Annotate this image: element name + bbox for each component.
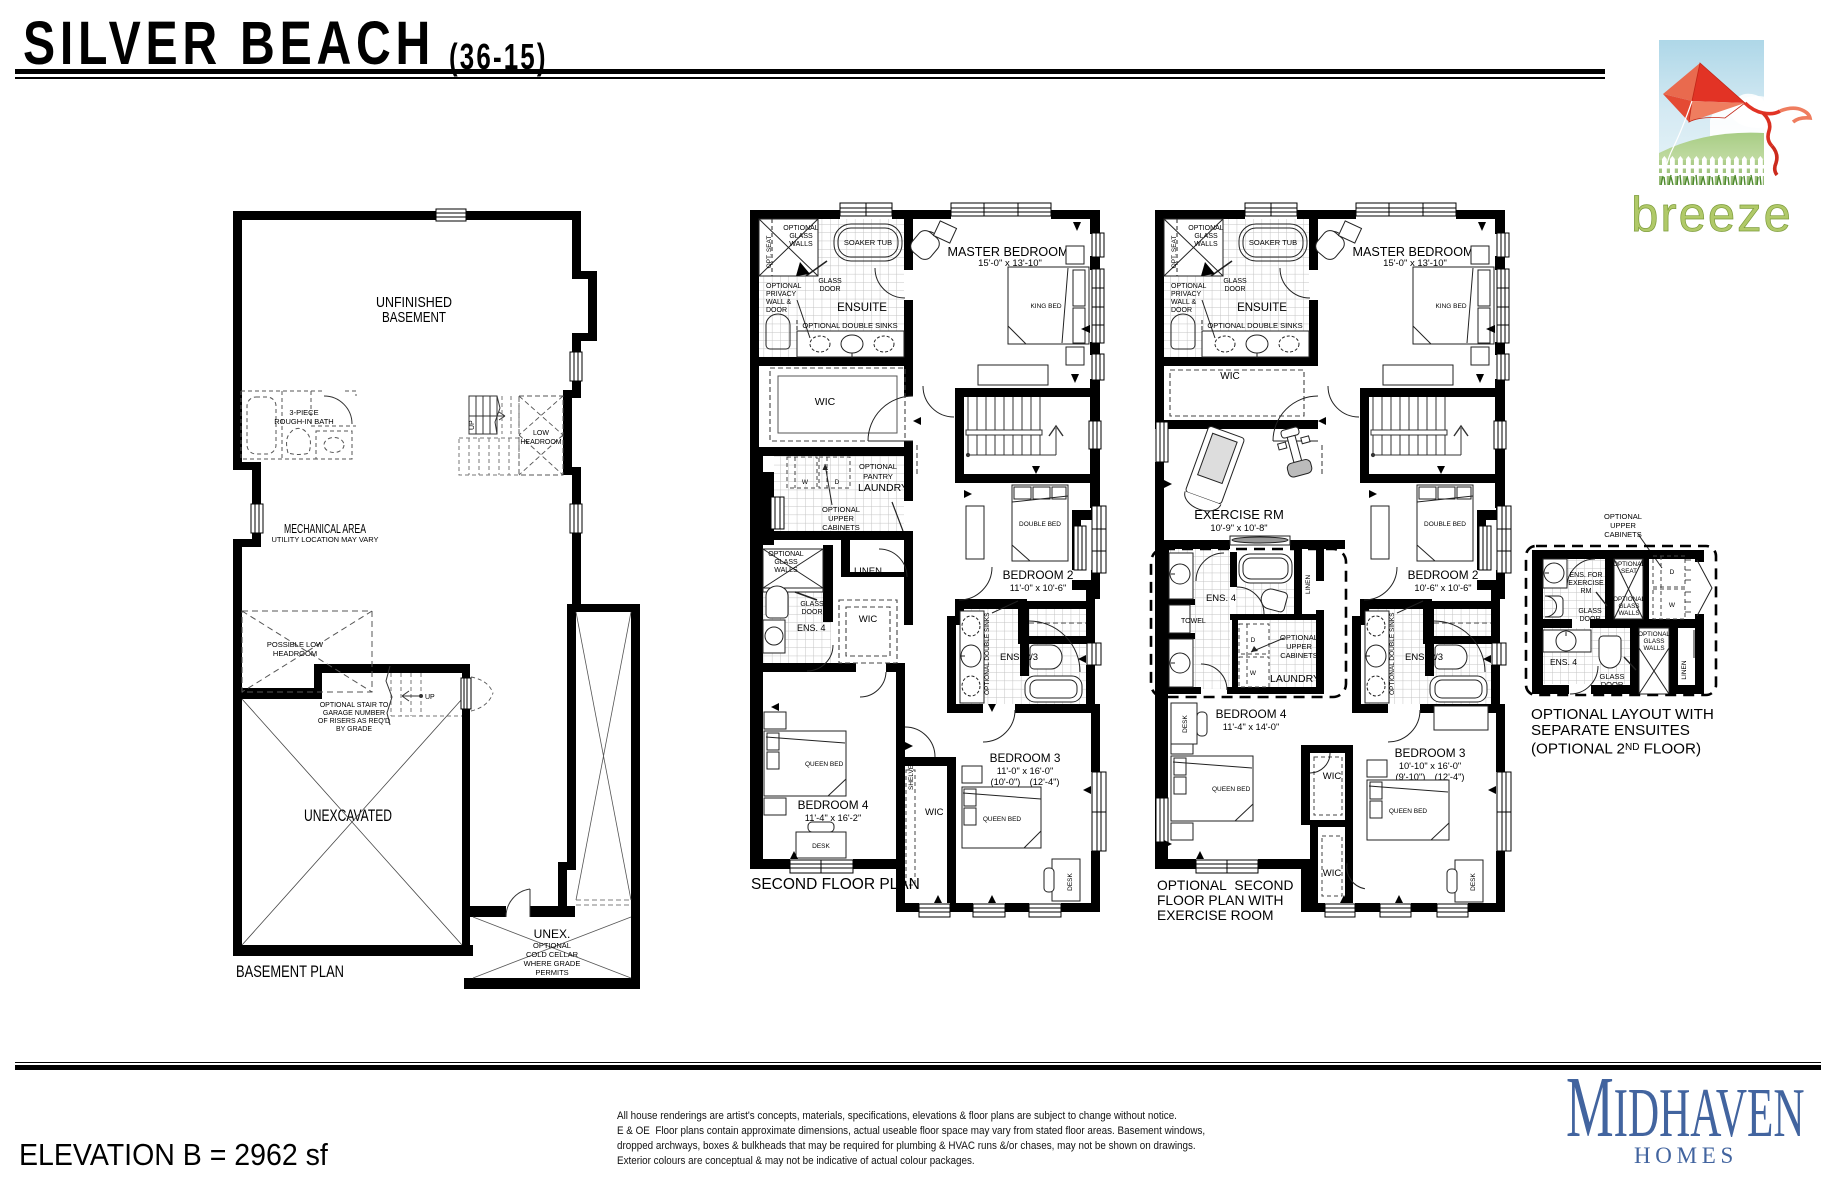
- svg-text:10'-6" x 10'-6": 10'-6" x 10'-6": [1414, 583, 1471, 593]
- svg-text:LOW: LOW: [533, 430, 549, 437]
- svg-text:WALL &: WALL &: [766, 299, 791, 306]
- svg-text:OPTIONAL: OPTIONAL: [783, 225, 819, 232]
- svg-text:CABINETS: CABINETS: [822, 523, 860, 532]
- svg-text:CABINETS: CABINETS: [1604, 530, 1642, 539]
- svg-text:ROUGH-IN BATH: ROUGH-IN BATH: [274, 417, 333, 426]
- svg-text:ENS. 2/3: ENS. 2/3: [1000, 652, 1038, 663]
- svg-text:WIC: WIC: [925, 807, 944, 818]
- svg-text:UNFINISHED: UNFINISHED: [376, 295, 452, 311]
- svg-text:D: D: [1670, 569, 1675, 576]
- svg-text:ENS. 4: ENS. 4: [1206, 593, 1236, 604]
- svg-text:OPT. SEAT: OPT. SEAT: [1171, 236, 1178, 269]
- svg-text:DOOR: DOOR: [766, 307, 787, 314]
- svg-text:WIC: WIC: [815, 396, 836, 408]
- svg-text:DOOR: DOOR: [802, 609, 823, 616]
- svg-text:GLASS: GLASS: [774, 559, 798, 566]
- svg-text:WIC: WIC: [1220, 371, 1239, 382]
- svg-text:GLASS: GLASS: [789, 233, 813, 240]
- svg-text:WALLS: WALLS: [1194, 241, 1218, 248]
- svg-text:LINEN: LINEN: [1305, 575, 1312, 594]
- svg-text:DESK: DESK: [1470, 872, 1477, 890]
- svg-text:CABINETS: CABINETS: [1280, 651, 1318, 660]
- svg-text:QUEEN BED: QUEEN BED: [1212, 786, 1251, 793]
- svg-text:BEDROOM 3: BEDROOM 3: [990, 751, 1061, 765]
- svg-text:LAUNDRY: LAUNDRY: [858, 482, 908, 494]
- svg-text:BASEMENT: BASEMENT: [382, 310, 446, 326]
- svg-text:MECHANICAL AREA: MECHANICAL AREA: [284, 522, 366, 536]
- svg-text:(10'-0") (12'-4"): (10'-0") (12'-4"): [990, 777, 1059, 787]
- svg-text:W: W: [802, 479, 809, 486]
- svg-text:UP: UP: [425, 694, 435, 701]
- svg-text:QUEEN BED: QUEEN BED: [805, 761, 844, 768]
- svg-text:GLASS: GLASS: [1644, 638, 1665, 645]
- svg-text:LINEN: LINEN: [854, 566, 882, 577]
- svg-text:OPTIONAL: OPTIONAL: [859, 462, 897, 471]
- svg-text:OPTIONAL: OPTIONAL: [1604, 512, 1642, 521]
- svg-text:LINEN: LINEN: [1681, 660, 1688, 679]
- svg-text:breeze: breeze: [1631, 188, 1793, 242]
- svg-text:OPTIONAL DOUBLE SINKS: OPTIONAL DOUBLE SINKS: [1389, 612, 1396, 695]
- svg-text:DN: DN: [1362, 460, 1369, 470]
- svg-text:RM: RM: [1581, 588, 1592, 595]
- svg-text:UPPER: UPPER: [1286, 642, 1312, 651]
- svg-text:POSSIBLE LOW: POSSIBLE LOW: [267, 640, 324, 649]
- svg-text:WALLS: WALLS: [1618, 610, 1639, 617]
- svg-text:GLASS: GLASS: [1578, 608, 1602, 615]
- svg-text:3-PIECE: 3-PIECE: [289, 408, 318, 417]
- svg-text:UPPER: UPPER: [1610, 521, 1636, 530]
- svg-text:DOOR: DOOR: [820, 286, 841, 293]
- svg-text:WIC: WIC: [1323, 771, 1342, 782]
- svg-text:GARAGE NUMBER: GARAGE NUMBER: [323, 710, 385, 717]
- svg-text:WALLS: WALLS: [789, 241, 813, 248]
- svg-text:DESK: DESK: [1067, 872, 1074, 890]
- svg-text:BY GRADE: BY GRADE: [336, 726, 372, 733]
- svg-text:BASEMENT PLAN: BASEMENT PLAN: [236, 963, 344, 981]
- svg-text:11'-0" x 10'-6": 11'-0" x 10'-6": [1010, 583, 1067, 593]
- svg-text:DOOR: DOOR: [1171, 307, 1192, 314]
- svg-text:D: D: [835, 479, 840, 486]
- svg-text:11'-0" x 16'-0": 11'-0" x 16'-0": [997, 766, 1054, 776]
- svg-text:11'-4" x 14'-0": 11'-4" x 14'-0": [1223, 722, 1280, 732]
- svg-text:LAUNDRY: LAUNDRY: [1270, 673, 1320, 685]
- svg-text:HEADROOM: HEADROOM: [520, 439, 561, 446]
- svg-text:OPTIONAL DOUBLE SINKS: OPTIONAL DOUBLE SINKS: [802, 321, 897, 330]
- svg-text:OPTIONAL DOUBLE SINKS: OPTIONAL DOUBLE SINKS: [1207, 321, 1302, 330]
- svg-text:ENSUITE: ENSUITE: [1237, 302, 1287, 314]
- svg-text:PERMITS: PERMITS: [535, 968, 568, 977]
- svg-text:OPTIONAL: OPTIONAL: [768, 551, 804, 558]
- svg-text:BEDROOM 3: BEDROOM 3: [1395, 746, 1466, 760]
- svg-text:DOOR: DOOR: [1225, 286, 1246, 293]
- svg-text:DOUBLE BED: DOUBLE BED: [1424, 521, 1466, 528]
- svg-text:PANTRY: PANTRY: [863, 472, 893, 481]
- svg-text:COLD CELLAR: COLD CELLAR: [526, 950, 579, 959]
- svg-text:OPTIONAL: OPTIONAL: [766, 283, 802, 290]
- svg-text:WHERE GRADE: WHERE GRADE: [524, 959, 581, 968]
- svg-text:OPTIONAL: OPTIONAL: [822, 505, 860, 514]
- svg-text:UTILITY LOCATION MAY VARY: UTILITY LOCATION MAY VARY: [271, 535, 378, 544]
- svg-text:PRIVACY: PRIVACY: [766, 291, 797, 298]
- svg-text:OPTIONAL STAIR TO: OPTIONAL STAIR TO: [320, 702, 389, 709]
- svg-text:TOWEL: TOWEL: [1181, 618, 1206, 625]
- svg-text:DOOR: DOOR: [1580, 616, 1601, 623]
- svg-text:UPPER: UPPER: [828, 514, 854, 523]
- svg-text:OPT. SEAT: OPT. SEAT: [766, 236, 773, 269]
- svg-text:GLASS: GLASS: [1194, 233, 1218, 240]
- svg-text:OPTIONAL: OPTIONAL: [1280, 633, 1318, 642]
- svg-text:GLASS: GLASS: [818, 278, 842, 285]
- svg-text:DN: DN: [957, 460, 964, 470]
- svg-text:BEDROOM 2: BEDROOM 2: [1003, 568, 1074, 582]
- svg-text:WALL &: WALL &: [1171, 299, 1196, 306]
- svg-text:OPTIONAL DOUBLE SINKS: OPTIONAL DOUBLE SINKS: [984, 612, 991, 695]
- svg-text:KING BED: KING BED: [1435, 303, 1466, 310]
- svg-text:ENSUITE: ENSUITE: [837, 302, 887, 314]
- svg-text:GLASS: GLASS: [800, 601, 824, 608]
- svg-text:BEDROOM 4: BEDROOM 4: [798, 798, 869, 812]
- svg-text:10'-10" x 16'-0": 10'-10" x 16'-0": [1399, 761, 1461, 771]
- svg-text:KING BED: KING BED: [1030, 303, 1061, 310]
- svg-text:UNEX.: UNEX.: [534, 927, 571, 941]
- svg-text:OPTIONAL: OPTIONAL: [1638, 631, 1670, 638]
- svg-text:UP: UP: [469, 420, 476, 430]
- svg-text:DESK: DESK: [1182, 714, 1189, 732]
- svg-text:OPTIONAL: OPTIONAL: [533, 941, 571, 950]
- svg-text:GLASS: GLASS: [1223, 278, 1247, 285]
- svg-text:SEAT: SEAT: [1621, 568, 1637, 575]
- svg-text:OPTIONAL: OPTIONAL: [1171, 283, 1207, 290]
- svg-text:ENS. 4: ENS. 4: [797, 623, 826, 633]
- svg-text:SOAKER TUB: SOAKER TUB: [844, 238, 892, 247]
- svg-text:WALLS: WALLS: [774, 567, 798, 574]
- svg-text:GLASS: GLASS: [1619, 603, 1640, 610]
- svg-text:EXERCISE: EXERCISE: [1568, 580, 1604, 587]
- svg-text:QUEEN BED: QUEEN BED: [983, 816, 1022, 823]
- svg-text:OF RISERS AS REQ'D: OF RISERS AS REQ'D: [318, 718, 390, 725]
- svg-text:PRIVACY: PRIVACY: [1171, 291, 1202, 298]
- svg-text:DOUBLE BED: DOUBLE BED: [1019, 521, 1061, 528]
- svg-text:WIC: WIC: [859, 614, 878, 625]
- svg-text:OPTIONAL: OPTIONAL: [1188, 225, 1224, 232]
- svg-text:MASTER BEDROOM: MASTER BEDROOM: [947, 245, 1068, 259]
- svg-text:DOOR: DOOR: [1601, 680, 1624, 689]
- svg-text:D: D: [1251, 637, 1256, 644]
- svg-text:BEDROOM 4: BEDROOM 4: [1216, 707, 1287, 721]
- svg-text:10'-9" x 10'-8": 10'-9" x 10'-8": [1210, 523, 1267, 533]
- svg-text:ENS. 4: ENS. 4: [1550, 657, 1577, 667]
- svg-text:OPTIONAL: OPTIONAL: [1613, 561, 1645, 568]
- svg-text:W: W: [1669, 602, 1676, 609]
- svg-text:SHELVES: SHELVES: [908, 760, 915, 790]
- svg-text:ENS. FOR: ENS. FOR: [1569, 572, 1602, 579]
- svg-text:WALLS: WALLS: [1643, 645, 1664, 652]
- svg-text:QUEEN BED: QUEEN BED: [1389, 808, 1428, 815]
- svg-text:UNEXCAVATED: UNEXCAVATED: [304, 807, 392, 825]
- svg-text:BEDROOM 2: BEDROOM 2: [1408, 568, 1479, 582]
- svg-text:DESK: DESK: [812, 843, 830, 850]
- svg-text:OPTIONAL: OPTIONAL: [1613, 596, 1645, 603]
- svg-text:HEADROOM: HEADROOM: [273, 649, 317, 658]
- svg-text:WIC: WIC: [1323, 868, 1342, 879]
- svg-text:MASTER BEDROOM: MASTER BEDROOM: [1352, 245, 1473, 259]
- svg-text:W: W: [1250, 670, 1257, 677]
- svg-text:SOAKER TUB: SOAKER TUB: [1249, 238, 1297, 247]
- svg-text:ENS. 2/3: ENS. 2/3: [1405, 652, 1443, 663]
